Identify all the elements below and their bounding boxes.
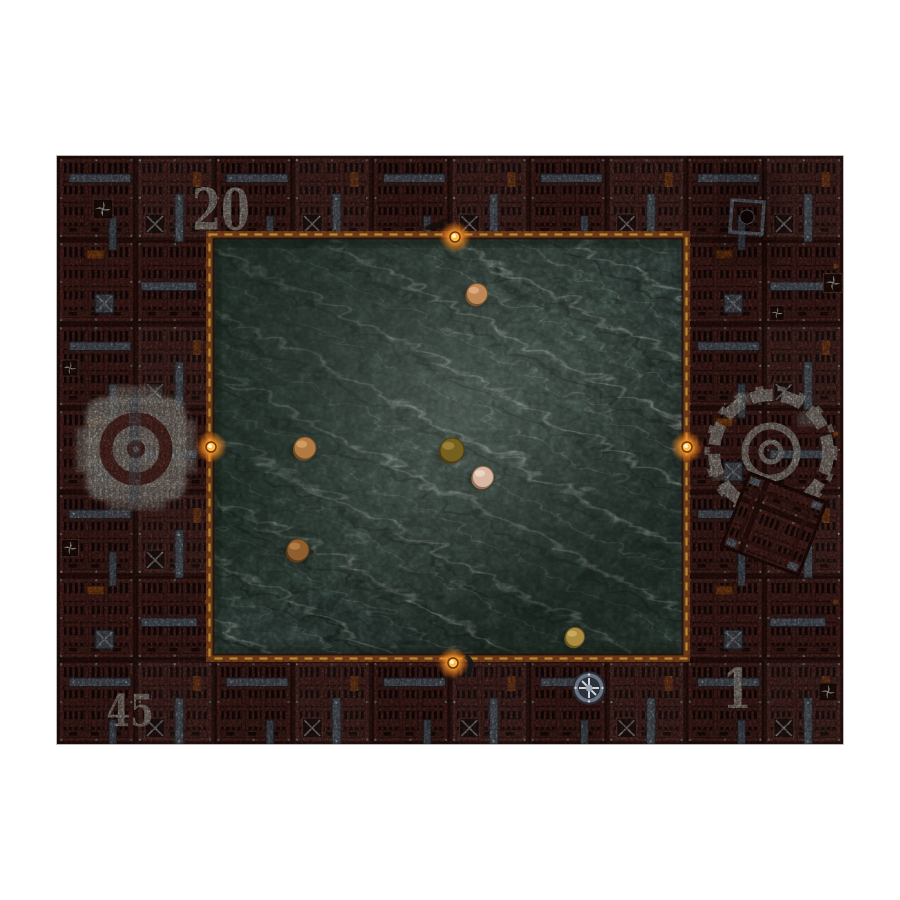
hazard-lamp: [437, 647, 469, 679]
fan-emblem-icon: [574, 673, 605, 704]
mat: 20 45 1: [57, 156, 843, 744]
hazard-lamp: [195, 431, 227, 463]
game-mat-image: 20 45 1: [0, 0, 900, 900]
hazard-lamp: [439, 221, 471, 253]
product-photo: 20 45 1: [0, 0, 900, 900]
hazard-lamp: [671, 431, 703, 463]
